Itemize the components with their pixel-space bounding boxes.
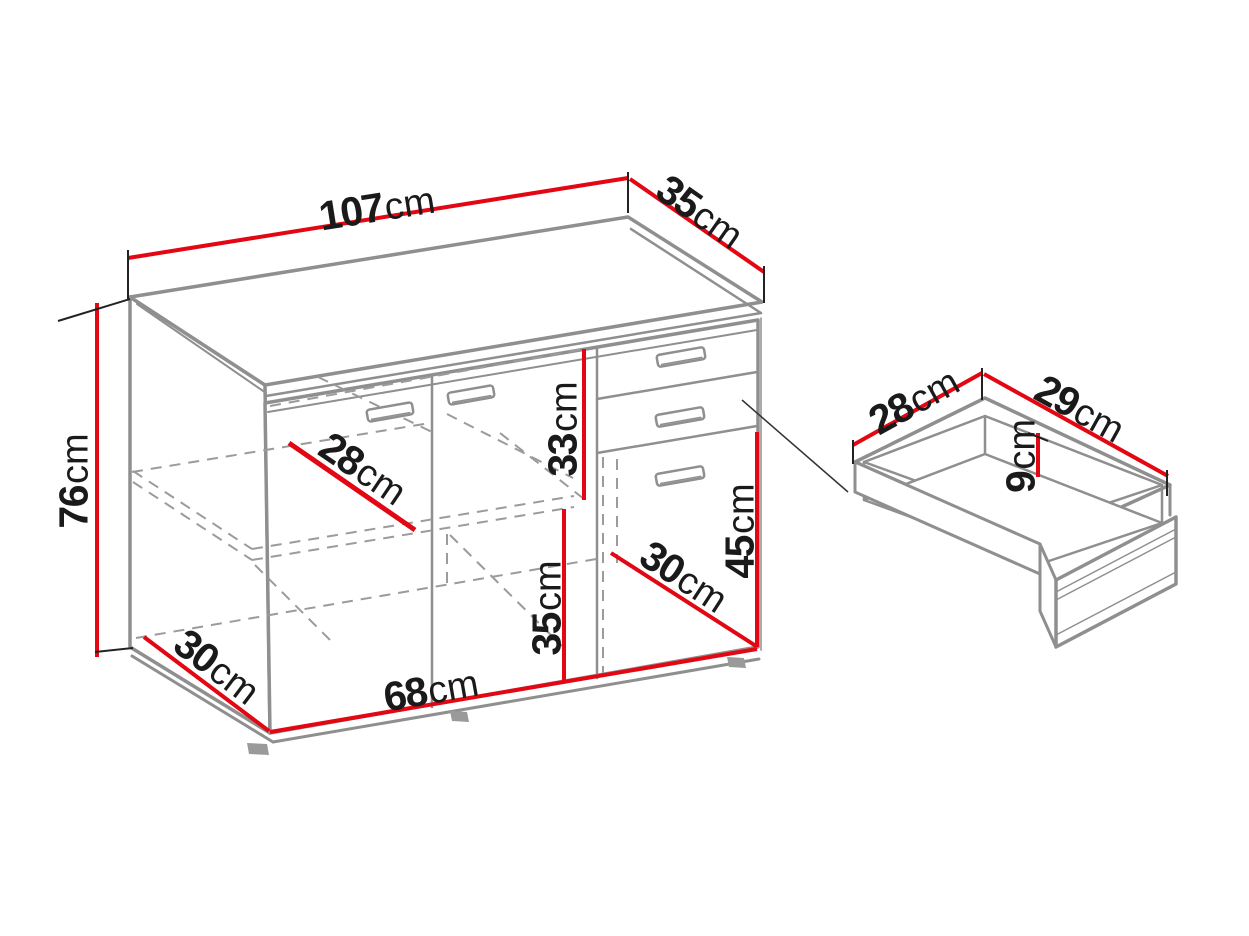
cabinet-foot (450, 711, 469, 722)
dimension-label-drawer-door-front: 45cm (720, 483, 761, 578)
dimension-label-drawer-inner-height: 9cm (1001, 419, 1042, 493)
dimension-label-total-height: 76cm (54, 433, 95, 528)
dimension-label-upper-compartment: 33cm (543, 381, 584, 476)
dimension-label-lower-compartment: 35cm (527, 560, 568, 655)
cabinet-foot (727, 657, 746, 668)
cabinet-foot (247, 743, 269, 755)
cabinet-line-art (0, 0, 1249, 936)
diagram-canvas: 107cm 35cm 76cm 28cm 33cm 35cm 45cm 30cm… (0, 0, 1249, 936)
